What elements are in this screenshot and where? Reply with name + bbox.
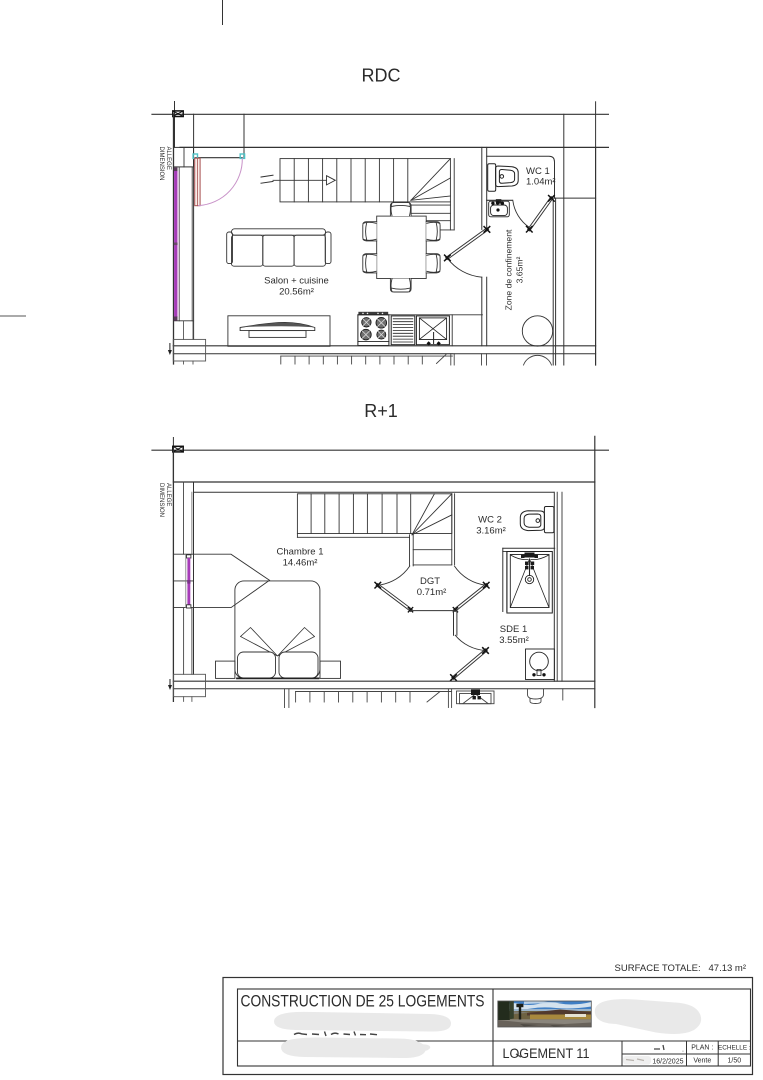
svg-text:1/50: 1/50 (727, 1058, 741, 1065)
svg-text:RDC: RDC (362, 66, 401, 86)
svg-text:3.65m²: 3.65m² (515, 256, 525, 283)
svg-text:Chambre 1: Chambre 1 (277, 547, 324, 558)
svg-text:0.71m²: 0.71m² (417, 587, 447, 598)
svg-text:1.04m²: 1.04m² (526, 177, 556, 188)
svg-text:16/2/2025: 16/2/2025 (652, 1059, 683, 1066)
svg-text:20.56m²: 20.56m² (279, 287, 314, 298)
svg-text:SDE 1: SDE 1 (500, 624, 527, 635)
svg-text:WC 2: WC 2 (478, 515, 502, 526)
svg-text:DIMENSION: DIMENSION (158, 147, 164, 181)
svg-text:Vente: Vente (693, 1058, 711, 1065)
svg-text:R+1: R+1 (364, 401, 398, 421)
svg-text:Zone de confinement: Zone de confinement (504, 229, 514, 310)
svg-text:ALLEGE: ALLEGE (165, 483, 171, 506)
svg-text:14.46m²: 14.46m² (283, 558, 318, 569)
svg-text:.: . (682, 1047, 684, 1054)
svg-text:WC 1: WC 1 (526, 166, 550, 177)
svg-text:ECHELLE :: ECHELLE : (718, 1045, 751, 1052)
svg-text:CONSTRUCTION DE 25 LOGEMENTS: CONSTRUCTION DE 25 LOGEMENTS (241, 993, 485, 1011)
svg-text:SURFACE TOTALE: 47.13 m²: SURFACE TOTALE: 47.13 m² (615, 963, 746, 974)
svg-text:3.55m²: 3.55m² (499, 635, 529, 646)
svg-text:DGT: DGT (420, 576, 440, 587)
svg-text:3.16m²: 3.16m² (476, 526, 506, 537)
svg-text:LOGEMENT 11: LOGEMENT 11 (503, 1045, 590, 1061)
svg-text:DIMENSION: DIMENSION (158, 483, 164, 517)
svg-text:Salon + cuisine: Salon + cuisine (264, 276, 329, 287)
svg-text:PLAN :: PLAN : (691, 1045, 713, 1052)
svg-text:ALLEGE: ALLEGE (165, 147, 171, 170)
